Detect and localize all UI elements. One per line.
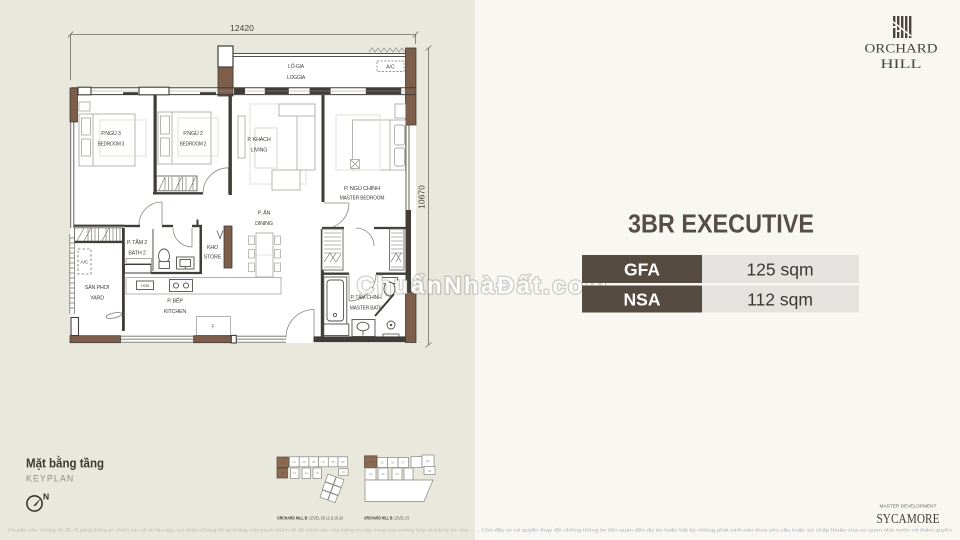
svg-text:P. KHÁCH: P. KHÁCH: [247, 136, 270, 143]
svg-text:06: 06: [428, 469, 432, 473]
svg-text:06: 06: [312, 460, 316, 464]
svg-text:LIVING: LIVING: [251, 148, 267, 154]
svg-text:MASTER BATH: MASTER BATH: [350, 306, 383, 312]
svg-text:P. NGỦ CHÍNH: P. NGỦ CHÍNH: [344, 185, 380, 192]
svg-text:YARD: YARD: [90, 296, 104, 302]
svg-text:GFA: GFA: [624, 260, 660, 280]
svg-text:SYCAMORE: SYCAMORE: [877, 511, 940, 526]
svg-text:112 sqm: 112 sqm: [747, 290, 813, 310]
svg-text:ChuẩnNhàĐất.com: ChuẩnNhàĐất.com: [357, 273, 609, 300]
svg-text:KHO: KHO: [207, 245, 218, 251]
svg-text:125 sqm: 125 sqm: [746, 260, 813, 280]
svg-text:09: 09: [381, 472, 385, 476]
svg-text:Mặt bằng tầng: Mặt bằng tầng: [26, 456, 104, 471]
svg-text:HILL: HILL: [881, 57, 922, 71]
svg-text:ORCHARD HILL B: LEVEL 03: ORCHARD HILL B: LEVEL 03: [364, 516, 409, 521]
svg-text:BATH 2: BATH 2: [128, 251, 145, 257]
svg-text:KITCHEN: KITCHEN: [164, 309, 187, 315]
svg-text:10: 10: [369, 472, 373, 476]
svg-text:, Chủ đầu tư có quyền thay đổi: , Chủ đầu tư có quyền thay đổi những thô…: [478, 527, 952, 534]
svg-text:LÔ-GIA: LÔ-GIA: [288, 63, 305, 70]
svg-text:16: 16: [281, 472, 285, 476]
svg-text:05: 05: [381, 461, 385, 465]
svg-text:09: 09: [341, 460, 345, 464]
svg-text:03: 03: [281, 461, 285, 465]
svg-text:14: 14: [293, 471, 297, 475]
svg-text:ORCHARD HILL B: LEVEL 05-12 &: ORCHARD HILL B: LEVEL 05-12 & 16-23: [277, 516, 343, 521]
svg-text:3BR EXECUTIVE: 3BR EXECUTIVE: [628, 209, 814, 239]
svg-text:07: 07: [402, 461, 406, 465]
svg-text:10670: 10670: [417, 185, 427, 209]
svg-text:08: 08: [331, 460, 335, 464]
svg-text:08: 08: [395, 472, 399, 476]
svg-text:KEYPLAN: KEYPLAN: [26, 474, 74, 484]
svg-text:DINING: DINING: [255, 221, 273, 227]
svg-text:P. BẾP: P. BẾP: [167, 298, 183, 305]
svg-text:07: 07: [322, 460, 326, 464]
svg-text:BEDROOM 3: BEDROOM 3: [98, 142, 125, 148]
svg-text:LOGGIA: LOGGIA: [287, 75, 306, 81]
svg-text:04: 04: [426, 459, 430, 463]
svg-text:F: F: [211, 325, 214, 331]
svg-text:04: 04: [293, 460, 297, 464]
svg-text:06: 06: [391, 461, 395, 465]
svg-text:HOB: HOB: [141, 284, 149, 288]
svg-text:NSA: NSA: [624, 290, 661, 310]
svg-text:BEDROOM 2: BEDROOM 2: [180, 142, 207, 148]
svg-text:P. TẮM 2: P. TẮM 2: [127, 238, 147, 246]
svg-text:A/C: A/C: [81, 260, 90, 266]
svg-text:ORCHARD: ORCHARD: [865, 42, 938, 56]
svg-text:12420: 12420: [230, 23, 254, 33]
svg-text:P.NGỦ 2: P.NGỦ 2: [183, 130, 203, 137]
svg-text:13: 13: [305, 471, 309, 475]
svg-text:MASTER DEVELOPMENT: MASTER DEVELOPMENT: [880, 504, 937, 509]
svg-text:10: 10: [342, 470, 346, 474]
svg-text:Khuyến cáo: Chúng tôi đã cố gắ: Khuyến cáo: Chúng tôi đã cố gắng thông t…: [8, 527, 468, 534]
svg-text:MASTER BEDROOM: MASTER BEDROOM: [340, 196, 385, 202]
svg-text:P. ĂN: P. ĂN: [258, 210, 271, 217]
svg-text:05: 05: [302, 460, 306, 464]
svg-text:03: 03: [369, 460, 373, 464]
svg-text:A/C: A/C: [386, 65, 395, 71]
svg-text:P.NGỦ 3: P.NGỦ 3: [101, 130, 121, 137]
svg-text:STORE: STORE: [204, 255, 222, 261]
svg-text:12: 12: [316, 471, 320, 475]
svg-text:N: N: [43, 492, 49, 502]
svg-text:SÂN PHƠI: SÂN PHƠI: [85, 284, 110, 291]
